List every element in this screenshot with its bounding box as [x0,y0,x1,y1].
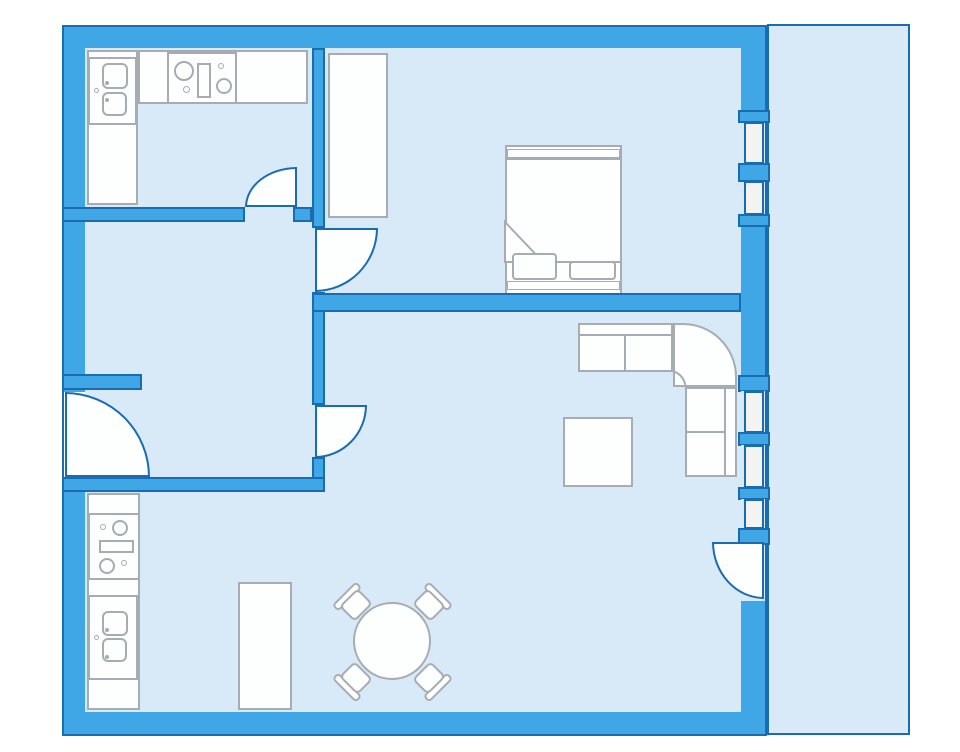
sofa-top-seat-divider [624,336,626,371]
bed-head-band [507,149,620,158]
kitchen-sink-tap [94,88,99,93]
utility-burner-small-bottom [121,560,127,566]
lower-window-pane-3 [744,499,764,529]
bed-foot-band [507,281,620,290]
entry-stub-wall [62,374,142,390]
coffee-table [563,417,633,487]
upper-window-sill-bottom [738,214,770,227]
kitchen-south-wall [62,207,245,222]
kitchen-sink-drain-lower [105,98,109,102]
lower-window-pane-2 [744,445,764,488]
utility-sink-drain-upper [105,628,109,632]
spine-wall-upper [312,48,325,228]
lower-window-mullion-1 [738,432,770,446]
utility-cooktop-drawer [99,540,134,553]
bed-pillow-right [569,261,616,280]
dining-table [353,602,431,680]
utility-sink-tap [94,635,99,640]
bed-pillow-left [512,253,557,280]
utility-burner-big-top [112,520,128,536]
upper-window-pane-2 [744,181,764,215]
dining-cabinet [238,582,292,710]
stove-burner-small-right [218,63,224,69]
stove-burner-small-left [183,86,190,93]
sofa-right-back-line [724,388,726,476]
sofa-right-seat-divider [686,431,724,433]
bedroom-wardrobe [328,53,388,218]
upper-window-sill-top [738,110,770,123]
kitchen-south-wall-stub [293,207,312,222]
stove-drawer [197,63,211,98]
kitchen-sink-drain-upper [105,81,109,85]
utility-sink-basin-upper [102,611,128,636]
kitchen-sink-basin-lower [102,92,127,116]
upper-window-pane-1 [744,122,764,164]
stove-burner-big-left [174,61,194,81]
utility-burner-big-bottom [99,558,115,574]
stove-burner-big-right [216,78,232,94]
lower-window-pane-1 [744,391,764,433]
utility-burner-small-top [100,524,106,530]
floor-plan [0,0,960,752]
room-divider-wall [312,293,741,312]
utility-sink-drain-lower [105,655,109,659]
lower-window-sill-top [738,375,770,392]
sofa-top-back-line [579,334,673,336]
hallway-south-wall [62,477,325,492]
upper-window-mullion [738,163,770,182]
kitchen-sink-basin-upper [102,63,128,89]
balcony-floor [767,24,910,735]
